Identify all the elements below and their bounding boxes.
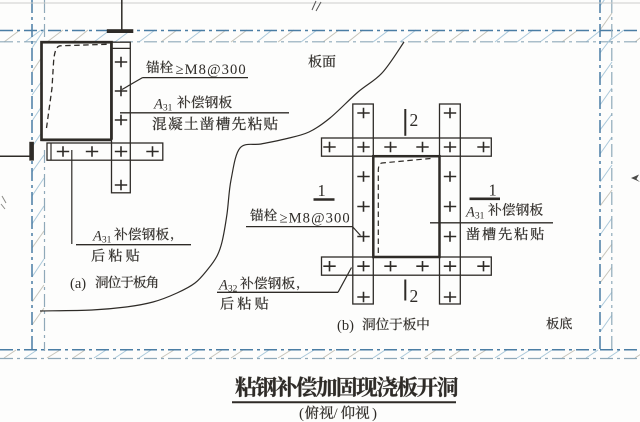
svg-text:2: 2 — [410, 286, 419, 306]
svg-text:≥M8@300: ≥M8@300 — [176, 62, 247, 78]
svg-text:): ) — [372, 406, 377, 422]
svg-text:1: 1 — [318, 181, 326, 200]
svg-text:2: 2 — [410, 110, 419, 130]
svg-text:A31: A31 — [92, 229, 112, 246]
svg-text:≥M8@300: ≥M8@300 — [280, 211, 351, 227]
svg-text:/: / — [334, 406, 339, 422]
svg-text:(: ( — [299, 406, 304, 422]
svg-text:A31: A31 — [153, 97, 173, 114]
svg-text:A31: A31 — [465, 205, 485, 222]
svg-text:(b): (b) — [337, 318, 354, 334]
svg-text:(a): (a) — [70, 276, 86, 292]
svg-text:1: 1 — [489, 181, 497, 200]
